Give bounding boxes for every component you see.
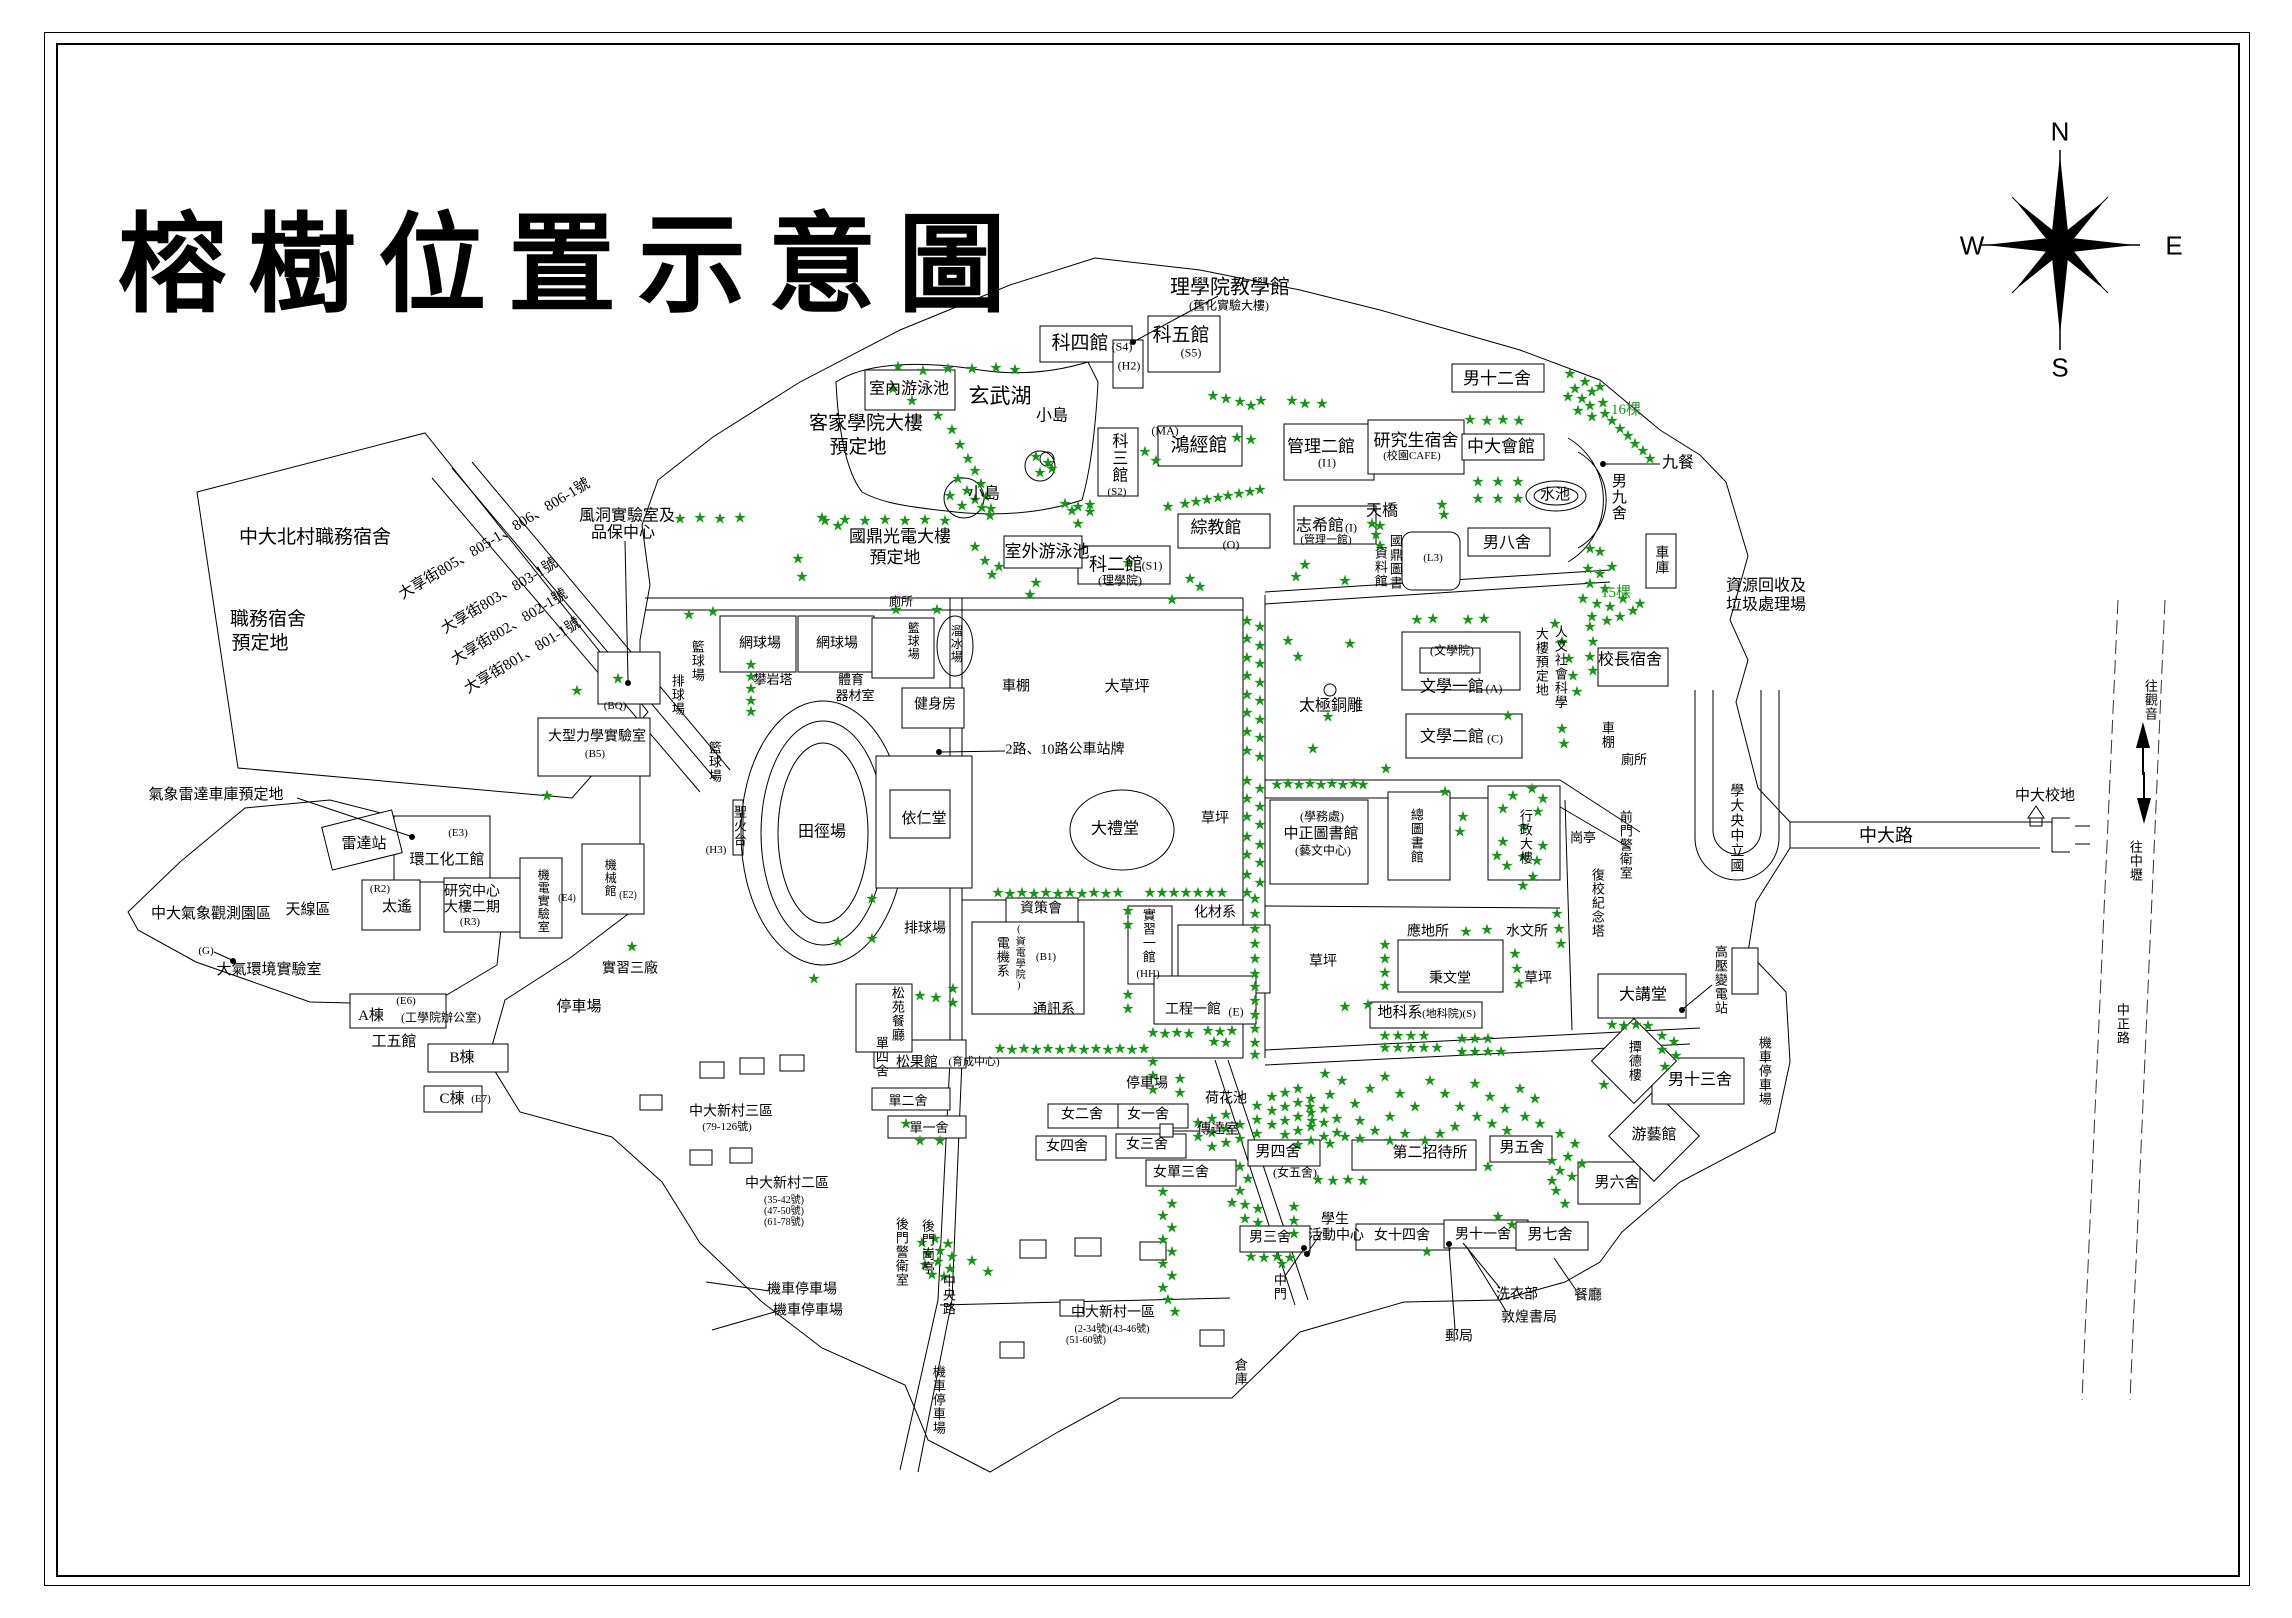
map-label: 前門警衛室 [1618, 810, 1632, 880]
map-label: 玄武湖 [969, 385, 1032, 407]
banyan-tree-star-icon: ★ [1244, 1251, 1257, 1266]
banyan-tree-star-icon: ★ [1477, 613, 1490, 628]
map-label: 實習一館 [1141, 908, 1155, 964]
map-label: 大氣環境實驗室 [216, 963, 321, 979]
map-label: 中大會館 [1467, 438, 1535, 456]
map-label: 職務宿舍 [230, 610, 306, 630]
map-label: 男四舍 [1255, 1145, 1300, 1161]
banyan-tree-star-icon: ★ [1593, 546, 1606, 561]
map-label: (H2) [1118, 360, 1141, 373]
map-label: 行政大樓 [1518, 809, 1532, 865]
map-label: 文學二館 [1420, 730, 1484, 747]
banyan-tree-star-icon: ★ [713, 513, 726, 528]
map-label: 籃球場 [707, 741, 721, 783]
banyan-tree-star-icon: ★ [831, 936, 844, 951]
map-label: 游藝館 [1631, 1128, 1676, 1144]
banyan-tree-star-icon: ★ [1423, 1075, 1436, 1090]
map-label: 大樓二期 [444, 902, 500, 917]
banyan-tree-star-icon: ★ [1253, 751, 1266, 766]
map-label: 男六舍 [1594, 1176, 1639, 1192]
banyan-tree-star-icon: ★ [1361, 999, 1374, 1014]
map-label: 往觀音 [2143, 679, 2157, 721]
banyan-tree-star-icon: ★ [733, 512, 746, 527]
banyan-tree-star-icon: ★ [1550, 908, 1563, 923]
banyan-tree-star-icon: ★ [625, 941, 638, 956]
map-label: 後門警衛室 [894, 1217, 908, 1287]
map-label: 機車停車場 [773, 1305, 843, 1320]
map-label: 中正路 [2115, 1003, 2129, 1045]
banyan-tree-star-icon: ★ [1356, 779, 1369, 794]
banyan-tree-star-icon: ★ [1378, 1042, 1391, 1057]
banyan-tree-star-icon: ★ [983, 510, 996, 525]
map-label: (理學院) [1098, 575, 1142, 588]
map-label: 大草坪 [1104, 680, 1149, 696]
banyan-tree-star-icon: ★ [1533, 1118, 1546, 1133]
banyan-tree-star-icon: ★ [1501, 710, 1514, 725]
banyan-tree-star-icon: ★ [570, 685, 583, 700]
map-label: (HH) [1136, 969, 1159, 981]
banyan-tree-star-icon: ★ [1433, 1128, 1446, 1143]
banyan-tree-star-icon: ★ [989, 362, 1002, 377]
banyan-tree-star-icon: ★ [1248, 908, 1261, 923]
map-label: (C) [1487, 733, 1503, 746]
banyan-tree-star-icon: ★ [1468, 1078, 1481, 1093]
banyan-tree-star-icon: ★ [1500, 860, 1513, 875]
map-label: 雷達站 [341, 837, 386, 853]
banyan-tree-star-icon: ★ [1315, 398, 1328, 413]
banyan-tree-star-icon: ★ [1553, 1128, 1566, 1143]
banyan-tree-star-icon: ★ [1453, 1101, 1466, 1116]
banyan-tree-star-icon: ★ [1410, 614, 1423, 629]
banyan-tree-star-icon: ★ [1363, 1083, 1376, 1098]
map-label: 排球場 [904, 923, 946, 938]
map-label: 男三舍 [1249, 1232, 1291, 1247]
banyan-tree-star-icon: ★ [1244, 434, 1257, 449]
banyan-tree-star-icon: ★ [1338, 575, 1351, 590]
banyan-tree-star-icon: ★ [1404, 1042, 1417, 1057]
banyan-tree-star-icon: ★ [1426, 613, 1439, 628]
banyan-tree-star-icon: ★ [1240, 849, 1253, 864]
map-label: 國鼎光電大樓 [849, 528, 951, 546]
map-label: (O) [1223, 539, 1240, 552]
map-label: 工程一館 [1165, 1004, 1221, 1019]
map-label: 中正圖書館 [1283, 827, 1358, 843]
map-label: (47-50號) [764, 1207, 804, 1218]
banyan-tree-star-icon: ★ [1508, 948, 1521, 963]
map-label: 文學一館 [1420, 680, 1484, 697]
banyan-tree-star-icon: ★ [1240, 775, 1253, 790]
map-label: (I1) [1318, 457, 1336, 470]
map-page: 榕樹位置示意圖 N E S W [0, 0, 2292, 1618]
map-label: 郵局 [1445, 1331, 1473, 1346]
map-label: 總圖書館 [1409, 808, 1423, 864]
banyan-tree-star-icon: ★ [913, 1135, 926, 1150]
banyan-tree-star-icon: ★ [1008, 364, 1021, 379]
map-label: 綜教館 [1191, 519, 1242, 537]
banyan-tree-star-icon: ★ [1240, 793, 1253, 808]
banyan-tree-star-icon: ★ [1165, 594, 1178, 609]
map-label: (61-78號) [764, 1218, 804, 1229]
map-label: 男五舍 [1499, 1141, 1544, 1157]
banyan-tree-star-icon: ★ [931, 410, 944, 425]
banyan-tree-star-icon: ★ [1586, 636, 1599, 651]
banyan-tree-star-icon: ★ [1518, 1111, 1531, 1126]
banyan-tree-star-icon: ★ [1641, 1020, 1654, 1035]
map-label: (2-34號)(43-46號) [1075, 1325, 1150, 1336]
banyan-tree-star-icon: ★ [1121, 1003, 1134, 1018]
map-label: 崗亭 [1570, 831, 1596, 845]
map-label: 天橋 [1366, 504, 1398, 521]
map-label: (E3) [448, 828, 468, 840]
banyan-tree-star-icon: ★ [1459, 926, 1472, 941]
map-label: 資策會 [1020, 903, 1062, 918]
map-label: (B1) [1036, 952, 1056, 964]
banyan-tree-star-icon: ★ [1278, 1129, 1291, 1144]
map-label: 天線區 [285, 903, 330, 919]
banyan-tree-star-icon: ★ [981, 1266, 994, 1281]
banyan-tree-star-icon: ★ [1353, 1115, 1366, 1130]
map-label: 小島 [968, 487, 1000, 504]
map-label: C棟 [439, 1092, 464, 1108]
banyan-tree-star-icon: ★ [1470, 1111, 1483, 1126]
banyan-tree-star-icon: ★ [1215, 887, 1228, 902]
banyan-tree-star-icon: ★ [1270, 1251, 1283, 1266]
banyan-tree-star-icon: ★ [1083, 506, 1096, 521]
banyan-tree-star-icon: ★ [1448, 1121, 1461, 1136]
map-label: 攀岩塔 [753, 673, 792, 687]
banyan-tree-star-icon: ★ [1393, 1088, 1406, 1103]
banyan-tree-star-icon: ★ [1563, 368, 1576, 383]
banyan-tree-star-icon: ★ [1253, 877, 1266, 892]
banyan-tree-star-icon: ★ [1528, 1093, 1541, 1108]
map-label: 中大校地 [2015, 789, 2075, 805]
banyan-tree-star-icon: ★ [1554, 938, 1567, 953]
banyan-tree-star-icon: ★ [1511, 476, 1524, 491]
map-label: 松果館 [896, 1057, 938, 1072]
map-label: 科二館 [1089, 556, 1143, 575]
banyan-tree-star-icon: ★ [1338, 1001, 1351, 1016]
map-label: (地科院)(S) [1422, 1009, 1476, 1021]
map-label: 實習三廠 [602, 963, 658, 978]
banyan-tree-star-icon: ★ [1240, 745, 1253, 760]
banyan-tree-star-icon: ★ [1471, 493, 1484, 508]
map-label: 女單三舍 [1153, 1167, 1209, 1182]
map-label: 太遙 [382, 900, 412, 916]
banyan-tree-star-icon: ★ [1555, 723, 1568, 738]
banyan-tree-star-icon: ★ [1583, 578, 1596, 593]
map-label: 品保中心 [591, 526, 655, 543]
banyan-tree-star-icon: ★ [1121, 919, 1134, 934]
map-label: (35-42號) [764, 1196, 804, 1207]
banyan-tree-star-icon: ★ [1571, 405, 1584, 420]
banyan-tree-star-icon: ★ [1408, 1101, 1421, 1116]
banyan-tree-star-icon: ★ [1398, 1128, 1411, 1143]
banyan-tree-star-icon: ★ [1643, 453, 1656, 468]
banyan-tree-star-icon: ★ [1496, 414, 1509, 429]
banyan-tree-star-icon: ★ [865, 893, 878, 908]
banyan-tree-star-icon: ★ [1593, 381, 1606, 396]
banyan-tree-star-icon: ★ [1045, 463, 1058, 478]
banyan-tree-star-icon: ★ [1240, 707, 1253, 722]
banyan-tree-star-icon: ★ [1306, 743, 1319, 758]
map-label: 科四館 [1051, 334, 1108, 354]
map-label: 科五館 [1152, 326, 1209, 346]
map-label: 健身房 [914, 699, 956, 714]
banyan-tree-star-icon: ★ [1461, 614, 1474, 629]
banyan-tree-star-icon: ★ [1496, 803, 1509, 818]
map-label: 中大新村一區 [1071, 1307, 1155, 1322]
banyan-tree-star-icon: ★ [1257, 1252, 1270, 1267]
map-label: 志希館 [1296, 519, 1344, 536]
map-label: (藝文中心) [1295, 845, 1351, 858]
banyan-tree-star-icon: ★ [946, 997, 959, 1012]
map-label: 體育 [838, 673, 864, 687]
map-label: 室內游泳池 [869, 382, 949, 399]
map-label: (校園CAFE) [1383, 451, 1440, 463]
banyan-tree-star-icon: ★ [1168, 1306, 1181, 1321]
map-label: B棟 [449, 1051, 474, 1067]
map-label: 地科系 [1377, 1006, 1422, 1022]
banyan-tree-star-icon: ★ [1289, 571, 1302, 586]
map-label: (S5) [1181, 347, 1202, 360]
banyan-tree-star-icon: ★ [1238, 1213, 1251, 1228]
banyan-tree-star-icon: ★ [1491, 1211, 1504, 1226]
banyan-tree-star-icon: ★ [1613, 611, 1626, 626]
banyan-tree-star-icon: ★ [611, 673, 624, 688]
map-label: 男十一舍 [1455, 1229, 1511, 1244]
map-label: 車棚 [1002, 681, 1030, 696]
map-label: (S1) [1142, 560, 1163, 573]
banyan-tree-star-icon: ★ [1348, 1098, 1361, 1113]
map-label: (L3) [1423, 553, 1443, 565]
map-label: 男七舍 [1527, 1228, 1572, 1244]
map-label: (E) [1228, 1006, 1243, 1019]
banyan-tree-star-icon: ★ [1240, 811, 1253, 826]
map-label: 中大新村三區 [689, 1106, 773, 1121]
map-label: 依仁堂 [901, 812, 946, 828]
map-label: 科三館 [1109, 433, 1126, 484]
banyan-tree-star-icon: ★ [1253, 484, 1266, 499]
banyan-tree-star-icon: ★ [1248, 953, 1261, 968]
banyan-tree-star-icon: ★ [1323, 1138, 1336, 1153]
banyan-tree-star-icon: ★ [791, 553, 804, 568]
map-label: 15棵 [1601, 586, 1631, 602]
banyan-tree-star-icon: ★ [1368, 1125, 1381, 1140]
banyan-tree-star-icon: ★ [1512, 415, 1525, 430]
banyan-tree-star-icon: ★ [1253, 714, 1266, 729]
banyan-tree-star-icon: ★ [1511, 493, 1524, 508]
map-label: 停車場 [1126, 1078, 1168, 1093]
map-label: (舊化實驗大樓) [1189, 300, 1269, 313]
road-direction-arrows [2136, 722, 2151, 824]
banyan-tree-star-icon: ★ [1205, 1141, 1218, 1156]
map-label: 草坪 [1201, 813, 1229, 828]
map-label: (管理一館) [1300, 535, 1351, 547]
banyan-tree-star-icon: ★ [1318, 1068, 1331, 1083]
map-label: 機械館 [604, 859, 617, 898]
banyan-tree-star-icon: ★ [1182, 1028, 1195, 1043]
banyan-tree-star-icon: ★ [1240, 670, 1253, 685]
map-label: 小島 [1036, 409, 1068, 426]
map-label: 電機系 [995, 936, 1009, 978]
map-label: 籃球場 [907, 622, 920, 661]
map-label: (S2) [1108, 487, 1127, 499]
map-label: 校長宿舍 [1598, 653, 1662, 670]
map-label: 中門 [1272, 1273, 1286, 1301]
banyan-tree-star-icon: ★ [1253, 783, 1266, 798]
map-label: 松苑餐廳 [890, 986, 904, 1042]
banyan-tree-star-icon: ★ [1468, 1046, 1481, 1061]
banyan-tree-star-icon: ★ [929, 992, 942, 1007]
banyan-tree-star-icon: ★ [1248, 923, 1261, 938]
map-label: 男八舍 [1483, 536, 1531, 553]
banyan-tree-star-icon: ★ [815, 512, 828, 527]
map-label: 機車停車場 [1757, 1036, 1771, 1106]
map-label: (E4) [558, 894, 576, 905]
banyan-tree-star-icon: ★ [831, 520, 844, 535]
banyan-tree-star-icon: ★ [945, 424, 958, 439]
banyan-tree-star-icon: ★ [1173, 1087, 1186, 1102]
banyan-tree-star-icon: ★ [1206, 390, 1219, 405]
map-label: 器材室 [835, 689, 874, 703]
map-label: (學務處) [1300, 811, 1344, 824]
banyan-tree-star-icon: ★ [1253, 819, 1266, 834]
map-label: 水池 [1540, 488, 1570, 504]
banyan-tree-star-icon: ★ [1240, 869, 1253, 884]
map-label: (I) [1345, 522, 1357, 535]
map-label: 廁所 [889, 596, 913, 609]
map-label: 傳達室 [1197, 1124, 1239, 1139]
banyan-tree-star-icon: ★ [1605, 561, 1618, 576]
banyan-tree-star-icon: ★ [1149, 455, 1162, 470]
map-label: 車棚 [1600, 721, 1614, 749]
map-label: 聖火台 [732, 805, 746, 847]
banyan-tree-star-icon: ★ [1430, 1042, 1443, 1057]
map-label: 預定地 [829, 438, 886, 458]
map-label: (51-60號) [1066, 1336, 1106, 1347]
banyan-tree-star-icon: ★ [1417, 1042, 1430, 1057]
banyan-tree-star-icon: ★ [941, 363, 954, 378]
banyan-tree-star-icon: ★ [1240, 615, 1253, 630]
banyan-tree-star-icon: ★ [1513, 1083, 1526, 1098]
map-label: 網球場 [816, 638, 858, 653]
map-label: (育成中心) [948, 1057, 999, 1069]
map-label: 垃圾處理場 [1726, 598, 1806, 615]
map-label: 男十二舍 [1463, 370, 1531, 388]
banyan-tree-star-icon: ★ [1536, 840, 1549, 855]
map-label: 九餐 [1662, 456, 1694, 473]
banyan-tree-star-icon: ★ [1531, 806, 1544, 821]
map-label: 工五館 [371, 1035, 416, 1051]
banyan-tree-star-icon: ★ [1373, 520, 1386, 535]
banyan-tree-star-icon: ★ [891, 361, 904, 376]
banyan-tree-star-icon: ★ [682, 609, 695, 624]
map-label: (E7) [471, 1094, 491, 1106]
map-label: 排球場 [670, 674, 684, 716]
banyan-tree-star-icon: ★ [1304, 1135, 1317, 1150]
banyan-tree-star-icon: ★ [1281, 635, 1294, 650]
map-label: 化材系 [1194, 907, 1236, 922]
banyan-tree-star-icon: ★ [930, 604, 943, 619]
map-label: 國鼎圖書 [1388, 534, 1402, 590]
banyan-tree-star-icon: ★ [1253, 621, 1266, 636]
banyan-tree-star-icon: ★ [1248, 938, 1261, 953]
banyan-tree-star-icon: ★ [1420, 1246, 1433, 1261]
banyan-tree-star-icon: ★ [943, 490, 956, 505]
banyan-tree-star-icon: ★ [1305, 1115, 1318, 1130]
banyan-tree-star-icon: ★ [1570, 686, 1583, 701]
map-label: (R3) [460, 917, 480, 929]
map-label: (79-126號) [702, 1122, 752, 1134]
banyan-tree-star-icon: ★ [1510, 963, 1523, 978]
banyan-tree-star-icon: ★ [1453, 826, 1466, 841]
map-label: 中大北村職務宿舍 [239, 528, 391, 548]
map-label: 大樓預定地 [1534, 627, 1548, 697]
banyan-tree-star-icon: ★ [933, 1135, 946, 1150]
map-label: 荷花池 [1205, 1093, 1247, 1108]
banyan-tree-star-icon: ★ [795, 571, 808, 586]
banyan-tree-star-icon: ★ [1253, 857, 1266, 872]
banyan-tree-star-icon: ★ [865, 933, 878, 948]
map-label: 16棵 [1611, 403, 1641, 419]
map-label: 預定地 [870, 549, 921, 567]
banyan-tree-star-icon: ★ [916, 365, 929, 380]
map-label: 學生 [1321, 1214, 1349, 1229]
banyan-tree-star-icon: ★ [1193, 581, 1206, 596]
map-label: 停車場 [556, 1000, 601, 1016]
banyan-tree-star-icon: ★ [1253, 695, 1266, 710]
banyan-tree-star-icon: ★ [693, 512, 706, 527]
banyan-tree-star-icon: ★ [1576, 593, 1589, 608]
map-label: 中大路 [1859, 827, 1913, 846]
map-label: 撢德樓 [1627, 1040, 1641, 1082]
map-label: 鴻經館 [1170, 436, 1227, 456]
banyan-tree-star-icon: ★ [955, 500, 968, 515]
banyan-tree-star-icon: ★ [1456, 811, 1469, 826]
map-label: (BQ) [604, 701, 627, 713]
map-label: 資料館 [1373, 546, 1387, 588]
banyan-tree-star-icon: ★ [1323, 1089, 1336, 1104]
banyan-tree-star-icon: ★ [1585, 411, 1598, 426]
map-label: 室外游泳池 [1005, 543, 1090, 561]
map-label: 人文社會科學 [1553, 625, 1567, 709]
banyan-tree-star-icon: ★ [1326, 1175, 1339, 1190]
banyan-tree-star-icon: ★ [1253, 732, 1266, 747]
banyan-tree-star-icon: ★ [1378, 980, 1391, 995]
map-label: 通訊系 [1033, 1004, 1075, 1019]
banyan-tree-star-icon: ★ [1438, 786, 1451, 801]
map-label: 氣象雷達車庫預定地 [148, 788, 283, 804]
banyan-tree-star-icon: ★ [1481, 1161, 1494, 1176]
banyan-tree-star-icon: ★ [1438, 1088, 1451, 1103]
map-label: 機電實驗室 [537, 869, 550, 934]
banyan-tree-star-icon: ★ [1240, 831, 1253, 846]
banyan-tree-star-icon: ★ [1471, 476, 1484, 491]
map-label: 田徑場 [798, 825, 846, 842]
map-label: 學大央中立國 [1728, 783, 1743, 873]
banyan-tree-star-icon: ★ [807, 973, 820, 988]
banyan-tree-star-icon: ★ [1557, 738, 1570, 753]
map-label: 復校紀念塔 [1590, 868, 1604, 938]
map-label: 水文所 [1506, 926, 1548, 941]
banyan-tree-star-icon: ★ [1219, 393, 1232, 408]
banyan-tree-star-icon: ★ [965, 1255, 978, 1270]
map-label: (A) [1486, 683, 1503, 696]
banyan-tree-star-icon: ★ [1379, 763, 1392, 778]
map-label: 大型力學實驗室 [548, 731, 646, 746]
banyan-tree-star-icon: ★ [1353, 1133, 1366, 1148]
banyan-tree-star-icon: ★ [1240, 633, 1253, 648]
